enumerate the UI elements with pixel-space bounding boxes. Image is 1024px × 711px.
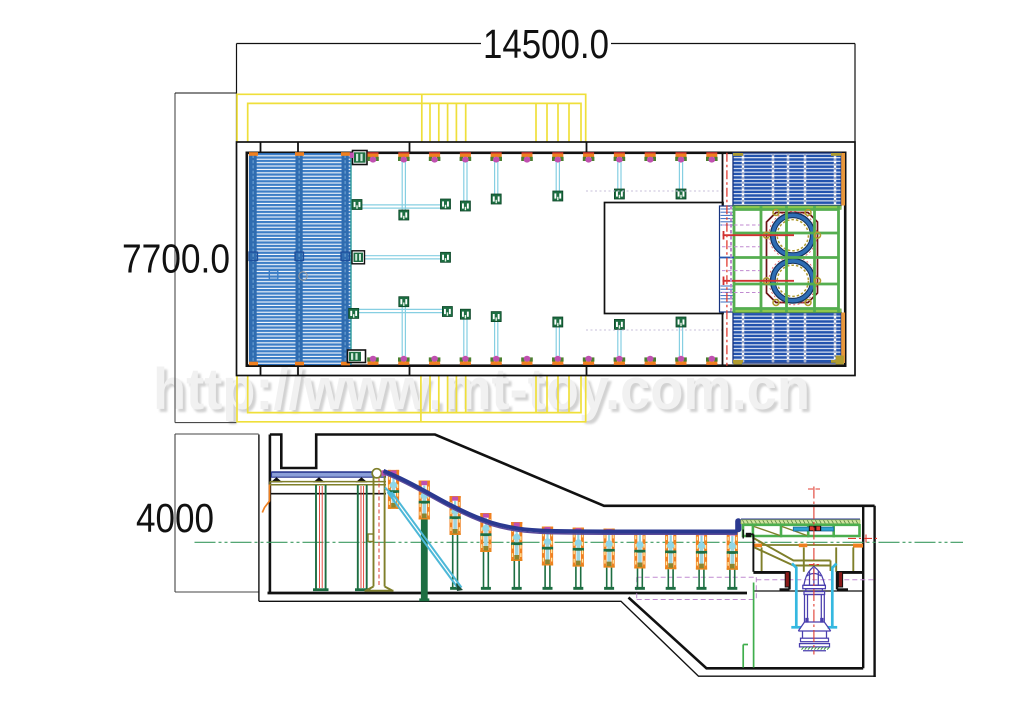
svg-text:4000: 4000 (136, 495, 214, 541)
svg-text:7700.0: 7700.0 (122, 235, 230, 281)
svg-text:14500.0: 14500.0 (483, 21, 609, 67)
